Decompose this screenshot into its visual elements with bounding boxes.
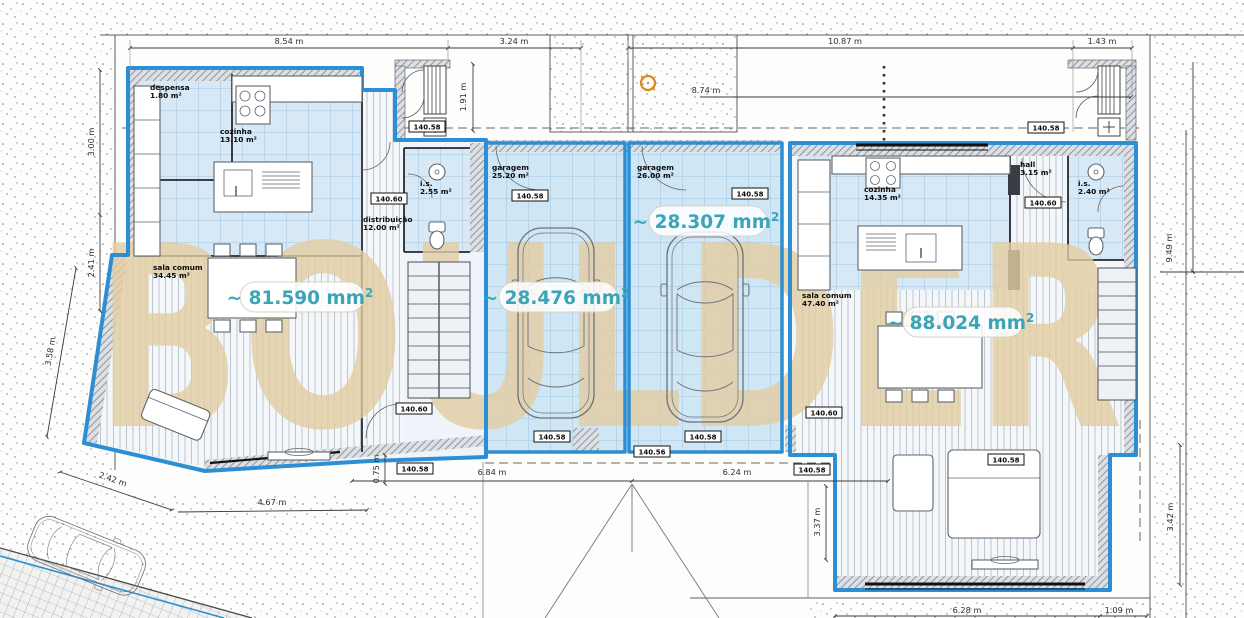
dimension-label: 6.84 m [478, 467, 507, 477]
svg-text:2.55 m²: 2.55 m² [420, 187, 452, 196]
dimension-label: 10.87 m [828, 36, 862, 46]
dimension-label: 1.09 m [1105, 605, 1134, 615]
left-stairs [408, 262, 470, 398]
area-measurement-pill[interactable]: ~ 28.476 mm2 [483, 282, 630, 312]
level-marker: 140.58 [689, 434, 716, 442]
right-stairs [1098, 268, 1136, 400]
dimension-label: 8.74 m [692, 85, 721, 95]
level-marker: 140.58 [736, 191, 763, 199]
dimension-label: 6.28 m [953, 605, 982, 615]
svg-text:~ 88.024 mm2: ~ 88.024 mm2 [888, 311, 1035, 334]
level-marker: 140.58 [516, 193, 543, 201]
dimension-label: 1.91 m [458, 83, 468, 112]
floor-plan-canvas: BOULDER [0, 0, 1244, 618]
tv-bench [268, 452, 330, 460]
kitchen-island [214, 162, 312, 212]
dimension-label: 1.43 m [1088, 36, 1117, 46]
svg-text:25.20 m²: 25.20 m² [492, 171, 529, 180]
svg-text:47.40 m²: 47.40 m² [802, 299, 839, 308]
level-marker: 140.56 [638, 449, 665, 457]
svg-text:14.35 m²: 14.35 m² [864, 193, 901, 202]
svg-text:3.15 m²: 3.15 m² [1020, 168, 1052, 177]
area-measurement-pill[interactable]: ~ 28.307 mm2 [633, 206, 780, 236]
stove [236, 86, 270, 124]
svg-text:~ 28.476 mm2: ~ 28.476 mm2 [483, 286, 630, 309]
washbasin [1088, 164, 1104, 180]
floor-plan-drawing: BOULDER [0, 0, 1244, 618]
level-marker: 140.58 [401, 466, 428, 474]
dimension-label: 3.37 m [812, 508, 822, 537]
area-measurement-pill[interactable]: ~ 88.024 mm2 [888, 307, 1035, 337]
dimension-label: 3.00 m [86, 128, 96, 157]
level-marker: 140.58 [538, 434, 565, 442]
level-marker: 140.58 [798, 467, 825, 475]
svg-text:34.45 m²: 34.45 m² [153, 271, 190, 280]
area-measurement-pill[interactable]: ~ 81.590 mm2 [227, 282, 374, 312]
dimension-label: 4.67 m [258, 497, 287, 507]
kitchen-island [858, 226, 962, 270]
dimension-label: 8.54 m [275, 36, 304, 46]
dimension-label: 0.75 m [371, 455, 381, 484]
svg-text:1.80 m²: 1.80 m² [150, 91, 182, 100]
svg-text:~ 28.307 mm2: ~ 28.307 mm2 [633, 210, 780, 233]
tv-bench [972, 560, 1038, 569]
toilet [1088, 228, 1104, 255]
level-marker: 140.58 [1032, 125, 1059, 133]
level-marker: 140.58 [992, 457, 1019, 465]
dimension-label: 2.41 m [86, 249, 96, 278]
toilet [429, 222, 445, 249]
washbasin [429, 164, 445, 180]
level-marker: 140.60 [1029, 200, 1056, 208]
dimension-label: 9.49 m [1164, 234, 1174, 263]
level-marker: 140.60 [400, 406, 427, 414]
svg-text:26.00 m²: 26.00 m² [637, 171, 674, 180]
level-marker: 140.60 [810, 410, 837, 418]
svg-text:~ 81.590 mm2: ~ 81.590 mm2 [227, 286, 374, 309]
level-marker: 140.58 [413, 124, 440, 132]
svg-text:13.10 m²: 13.10 m² [220, 135, 257, 144]
level-marker: 140.60 [375, 196, 402, 204]
dimension-label: 6.24 m [723, 467, 752, 477]
svg-text:12.00 m²: 12.00 m² [363, 223, 400, 232]
stove [866, 158, 900, 188]
svg-text:2.40 m²: 2.40 m² [1078, 187, 1110, 196]
dimension-label: 3.42 m [1165, 503, 1175, 532]
dimension-label: 3.24 m [500, 36, 529, 46]
armchair [893, 455, 933, 511]
